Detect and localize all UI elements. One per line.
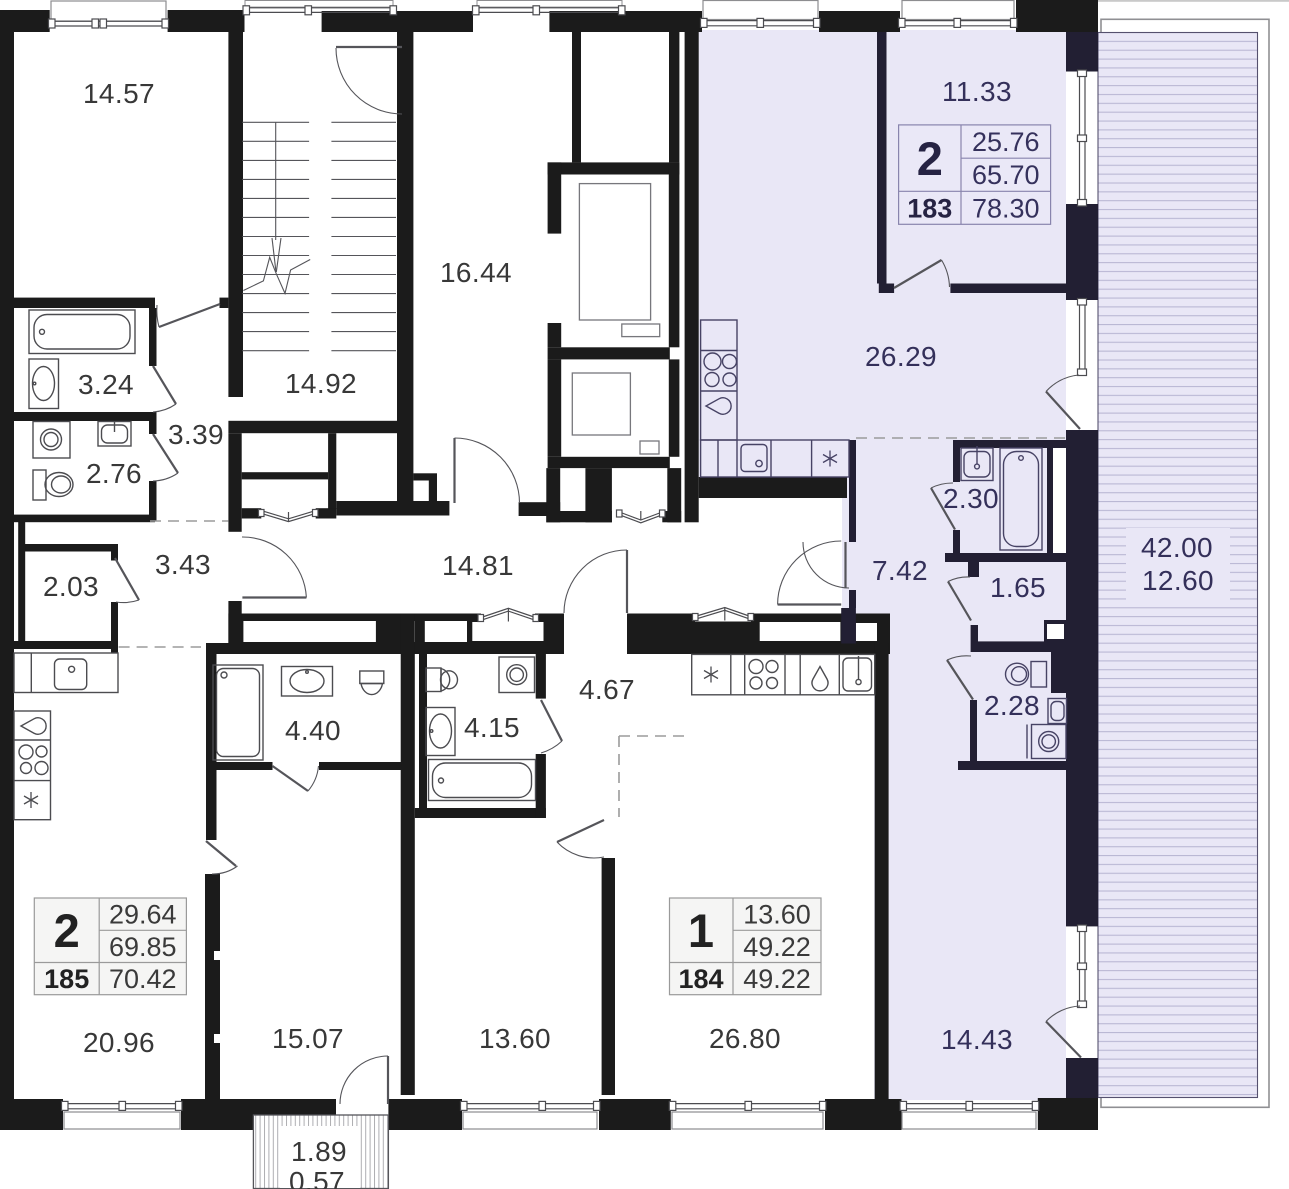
svg-text:183: 183 [907,193,952,223]
svg-text:13.60: 13.60 [479,1023,551,1054]
svg-text:20.96: 20.96 [83,1027,155,1058]
svg-text:3.39: 3.39 [168,419,224,450]
svg-text:184: 184 [678,964,723,994]
svg-text:25.76: 25.76 [972,127,1040,157]
svg-text:11.33: 11.33 [942,76,1012,107]
svg-text:29.64: 29.64 [109,900,177,930]
svg-text:2: 2 [54,904,80,957]
svg-text:14.81: 14.81 [442,550,514,581]
svg-text:78.30: 78.30 [972,193,1040,223]
svg-text:2: 2 [917,132,943,185]
svg-text:2.03: 2.03 [43,571,99,602]
svg-text:7.42: 7.42 [872,555,928,586]
svg-text:65.70: 65.70 [972,160,1040,190]
svg-text:26.80: 26.80 [709,1023,781,1054]
svg-text:12.60: 12.60 [1142,565,1214,596]
svg-text:1.65: 1.65 [990,572,1046,603]
svg-text:15.07: 15.07 [272,1023,344,1054]
svg-text:14.57: 14.57 [83,78,155,109]
svg-text:3.43: 3.43 [155,549,211,580]
svg-text:185: 185 [44,964,89,994]
svg-text:69.85: 69.85 [109,932,177,962]
svg-text:26.29: 26.29 [865,341,937,372]
svg-text:49.22: 49.22 [743,964,811,994]
svg-text:4.67: 4.67 [579,674,635,705]
svg-text:70.42: 70.42 [109,964,177,994]
svg-text:16.44: 16.44 [440,257,512,288]
svg-text:13.60: 13.60 [743,900,811,930]
svg-text:14.92: 14.92 [285,368,357,399]
svg-text:4.40: 4.40 [285,715,341,746]
svg-text:2.30: 2.30 [943,483,999,514]
svg-text:1.89: 1.89 [291,1136,347,1167]
svg-text:14.43: 14.43 [941,1024,1013,1055]
svg-text:0.57: 0.57 [289,1166,345,1189]
svg-text:3.24: 3.24 [78,369,134,400]
svg-text:49.22: 49.22 [743,932,811,962]
svg-text:2.28: 2.28 [984,690,1040,721]
svg-text:42.00: 42.00 [1141,532,1213,563]
svg-text:2.76: 2.76 [86,458,142,489]
svg-text:1: 1 [688,904,714,957]
svg-text:4.15: 4.15 [464,712,520,743]
